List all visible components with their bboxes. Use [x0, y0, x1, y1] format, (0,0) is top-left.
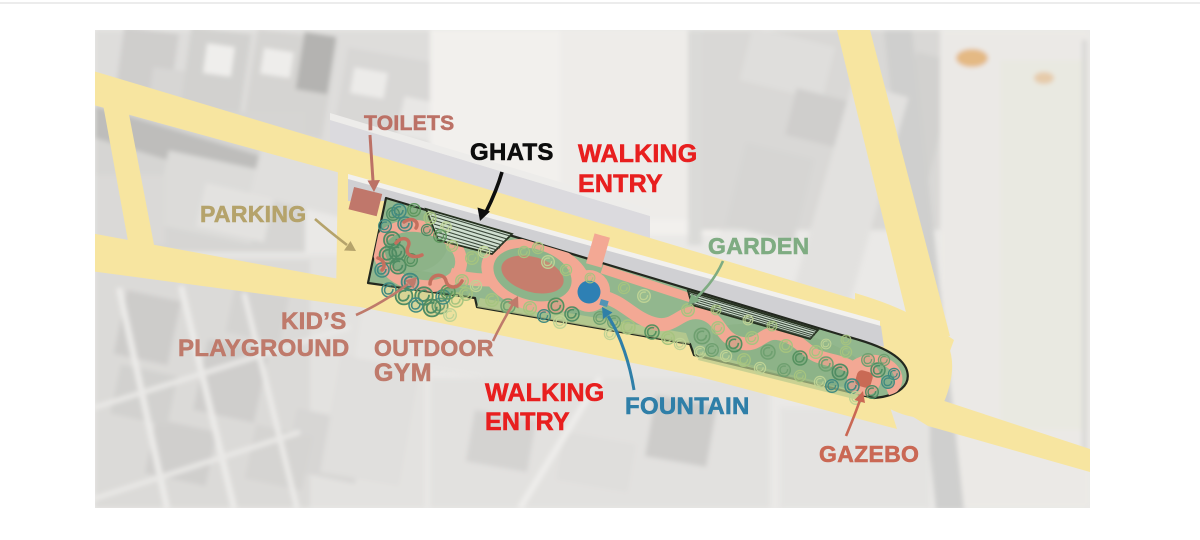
svg-text:OUTDOOR: OUTDOOR	[374, 335, 494, 361]
svg-text:ENTRY: ENTRY	[578, 170, 663, 198]
svg-text:ENTRY: ENTRY	[485, 408, 570, 436]
svg-text:WALKING: WALKING	[578, 140, 697, 168]
svg-text:FOUNTAIN: FOUNTAIN	[625, 393, 750, 420]
svg-text:GHATS: GHATS	[470, 139, 554, 166]
svg-text:PARKING: PARKING	[200, 201, 306, 227]
svg-text:GAZEBO: GAZEBO	[819, 441, 919, 467]
svg-text:WALKING: WALKING	[485, 379, 604, 407]
svg-text:KID’S: KID’S	[281, 308, 347, 335]
svg-text:PLAYGROUND: PLAYGROUND	[178, 335, 349, 362]
svg-text:TOILETS: TOILETS	[364, 112, 454, 135]
svg-text:GARDEN: GARDEN	[708, 233, 809, 259]
svg-text:GYM: GYM	[374, 359, 432, 387]
